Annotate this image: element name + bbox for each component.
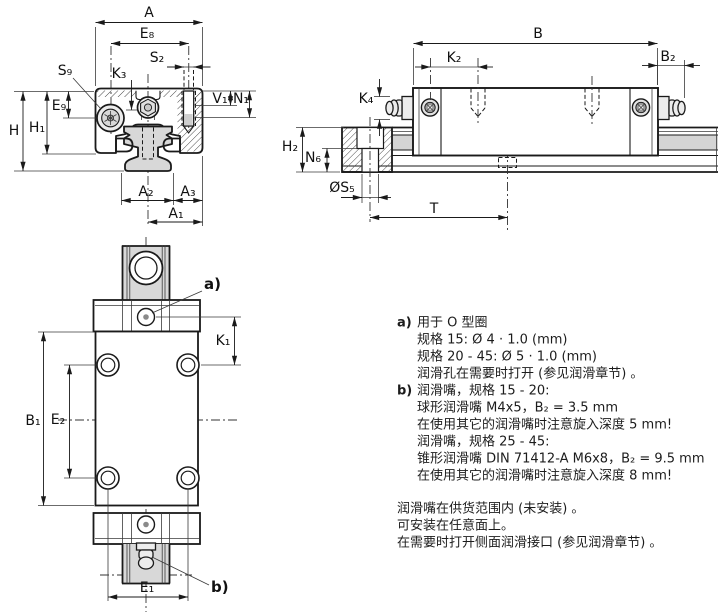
dim-label-h: H xyxy=(9,123,20,139)
note-footer-line-2: 可安装在任意面上。 xyxy=(397,518,514,534)
callout-a: a) xyxy=(204,275,221,293)
section-hatch-top-left xyxy=(97,91,136,98)
note-footer-line-3: 在需要时打开侧面润滑接口 (参见润滑章节) 。 xyxy=(397,535,662,551)
rail-top-upper xyxy=(122,246,170,301)
dim-label-e8: E₈ xyxy=(140,26,155,42)
callout-b: b) xyxy=(211,578,229,596)
note-b-line-1: 润滑嘴，规格 15 - 20: xyxy=(417,383,550,399)
dim-label-b: B xyxy=(533,26,543,42)
dim-label-e9: E₉ xyxy=(52,98,67,114)
note-a-line-4: 润滑孔在需要时打开 (参见润滑章节) 。 xyxy=(417,366,643,382)
front-dimensions: A E₈ S₂ S₉ K₃ V₁ N₁ xyxy=(9,5,256,226)
technical-drawing-page: A E₈ S₂ S₉ K₃ V₁ N₁ xyxy=(0,0,720,613)
note-a-marker: a) xyxy=(397,316,412,331)
note-a-line-2: 规格 15: Ø 4 · 1.0 (mm) xyxy=(417,332,568,348)
dim-label-k2: K₂ xyxy=(447,50,462,66)
note-a-line-3: 规格 20 - 45: Ø 5 · 1.0 (mm) xyxy=(417,349,597,365)
grease-nipple-top-view xyxy=(137,543,156,569)
note-b-line-6: 在使用其它的润滑嘴时注意旋入深度 8 mm! xyxy=(417,468,672,484)
side-view: B K₂ B₂ K₄ H₂ N₆ xyxy=(282,26,718,232)
dim-label-s5: ØS₅ xyxy=(329,180,355,196)
dim-label-a: A xyxy=(144,5,154,21)
dim-label-k1: K₁ xyxy=(216,333,231,349)
dim-label-n6: N₆ xyxy=(305,150,321,166)
center-screw xyxy=(138,97,159,120)
dim-label-a1: A₁ xyxy=(168,206,183,222)
rail-section-block xyxy=(342,117,392,222)
endcap-screw-left xyxy=(421,99,438,116)
dim-label-h2: H₂ xyxy=(282,139,298,155)
carriage-side xyxy=(386,58,685,156)
dim-label-t: T xyxy=(429,201,439,217)
dim-label-k3: K₃ xyxy=(112,66,127,82)
dim-label-a2: A₂ xyxy=(138,184,153,200)
dim-label-e1: E₁ xyxy=(140,580,154,596)
note-a-line-1: 用于 O 型圈 xyxy=(417,316,488,331)
dim-label-n1: N₁ xyxy=(233,91,249,107)
note-b-line-4: 润滑嘴，规格 25 - 45: xyxy=(417,434,550,450)
rail-top-lower xyxy=(122,543,170,584)
front-view: A E₈ S₂ S₉ K₃ V₁ N₁ xyxy=(9,5,256,226)
dim-label-a3: A₃ xyxy=(180,184,195,200)
endcap-screw-right xyxy=(632,99,649,116)
dim-label-s9: S₉ xyxy=(58,63,73,79)
grease-nipple-left xyxy=(386,97,413,120)
note-b-marker: b) xyxy=(397,384,412,399)
dim-label-b1: B₁ xyxy=(25,413,40,429)
grease-nipple-right xyxy=(658,97,685,120)
notes-block: a) 用于 O 型圈 规格 15: Ø 4 · 1.0 (mm) 规格 20 -… xyxy=(397,316,705,551)
note-b-line-3: 在使用其它的润滑嘴时注意旋入深度 5 mm! xyxy=(417,417,672,433)
drawing-canvas: A E₈ S₂ S₉ K₃ V₁ N₁ xyxy=(0,0,720,613)
dim-label-h1: H₁ xyxy=(29,120,45,136)
note-b-line-5: 锥形润滑嘴 DIN 71412-A M6x8，B₂ = 9.5 mm xyxy=(417,452,705,467)
dim-label-s2: S₂ xyxy=(150,50,165,66)
note-footer-line-1: 润滑嘴在供货范围内 (未安装) 。 xyxy=(397,501,584,517)
dim-label-v1: V₁ xyxy=(212,91,227,107)
note-b-line-2: 球形润滑嘴 M4x5，B₂ = 3.5 mm xyxy=(417,401,618,416)
top-view: a) b) K₁ B₁ E₂ E₁ xyxy=(25,237,241,612)
dim-label-b2: B₂ xyxy=(660,49,675,65)
dim-label-e2: E₂ xyxy=(51,412,65,428)
dim-label-k4: K₄ xyxy=(359,91,374,107)
carriage-top-view xyxy=(94,300,201,544)
